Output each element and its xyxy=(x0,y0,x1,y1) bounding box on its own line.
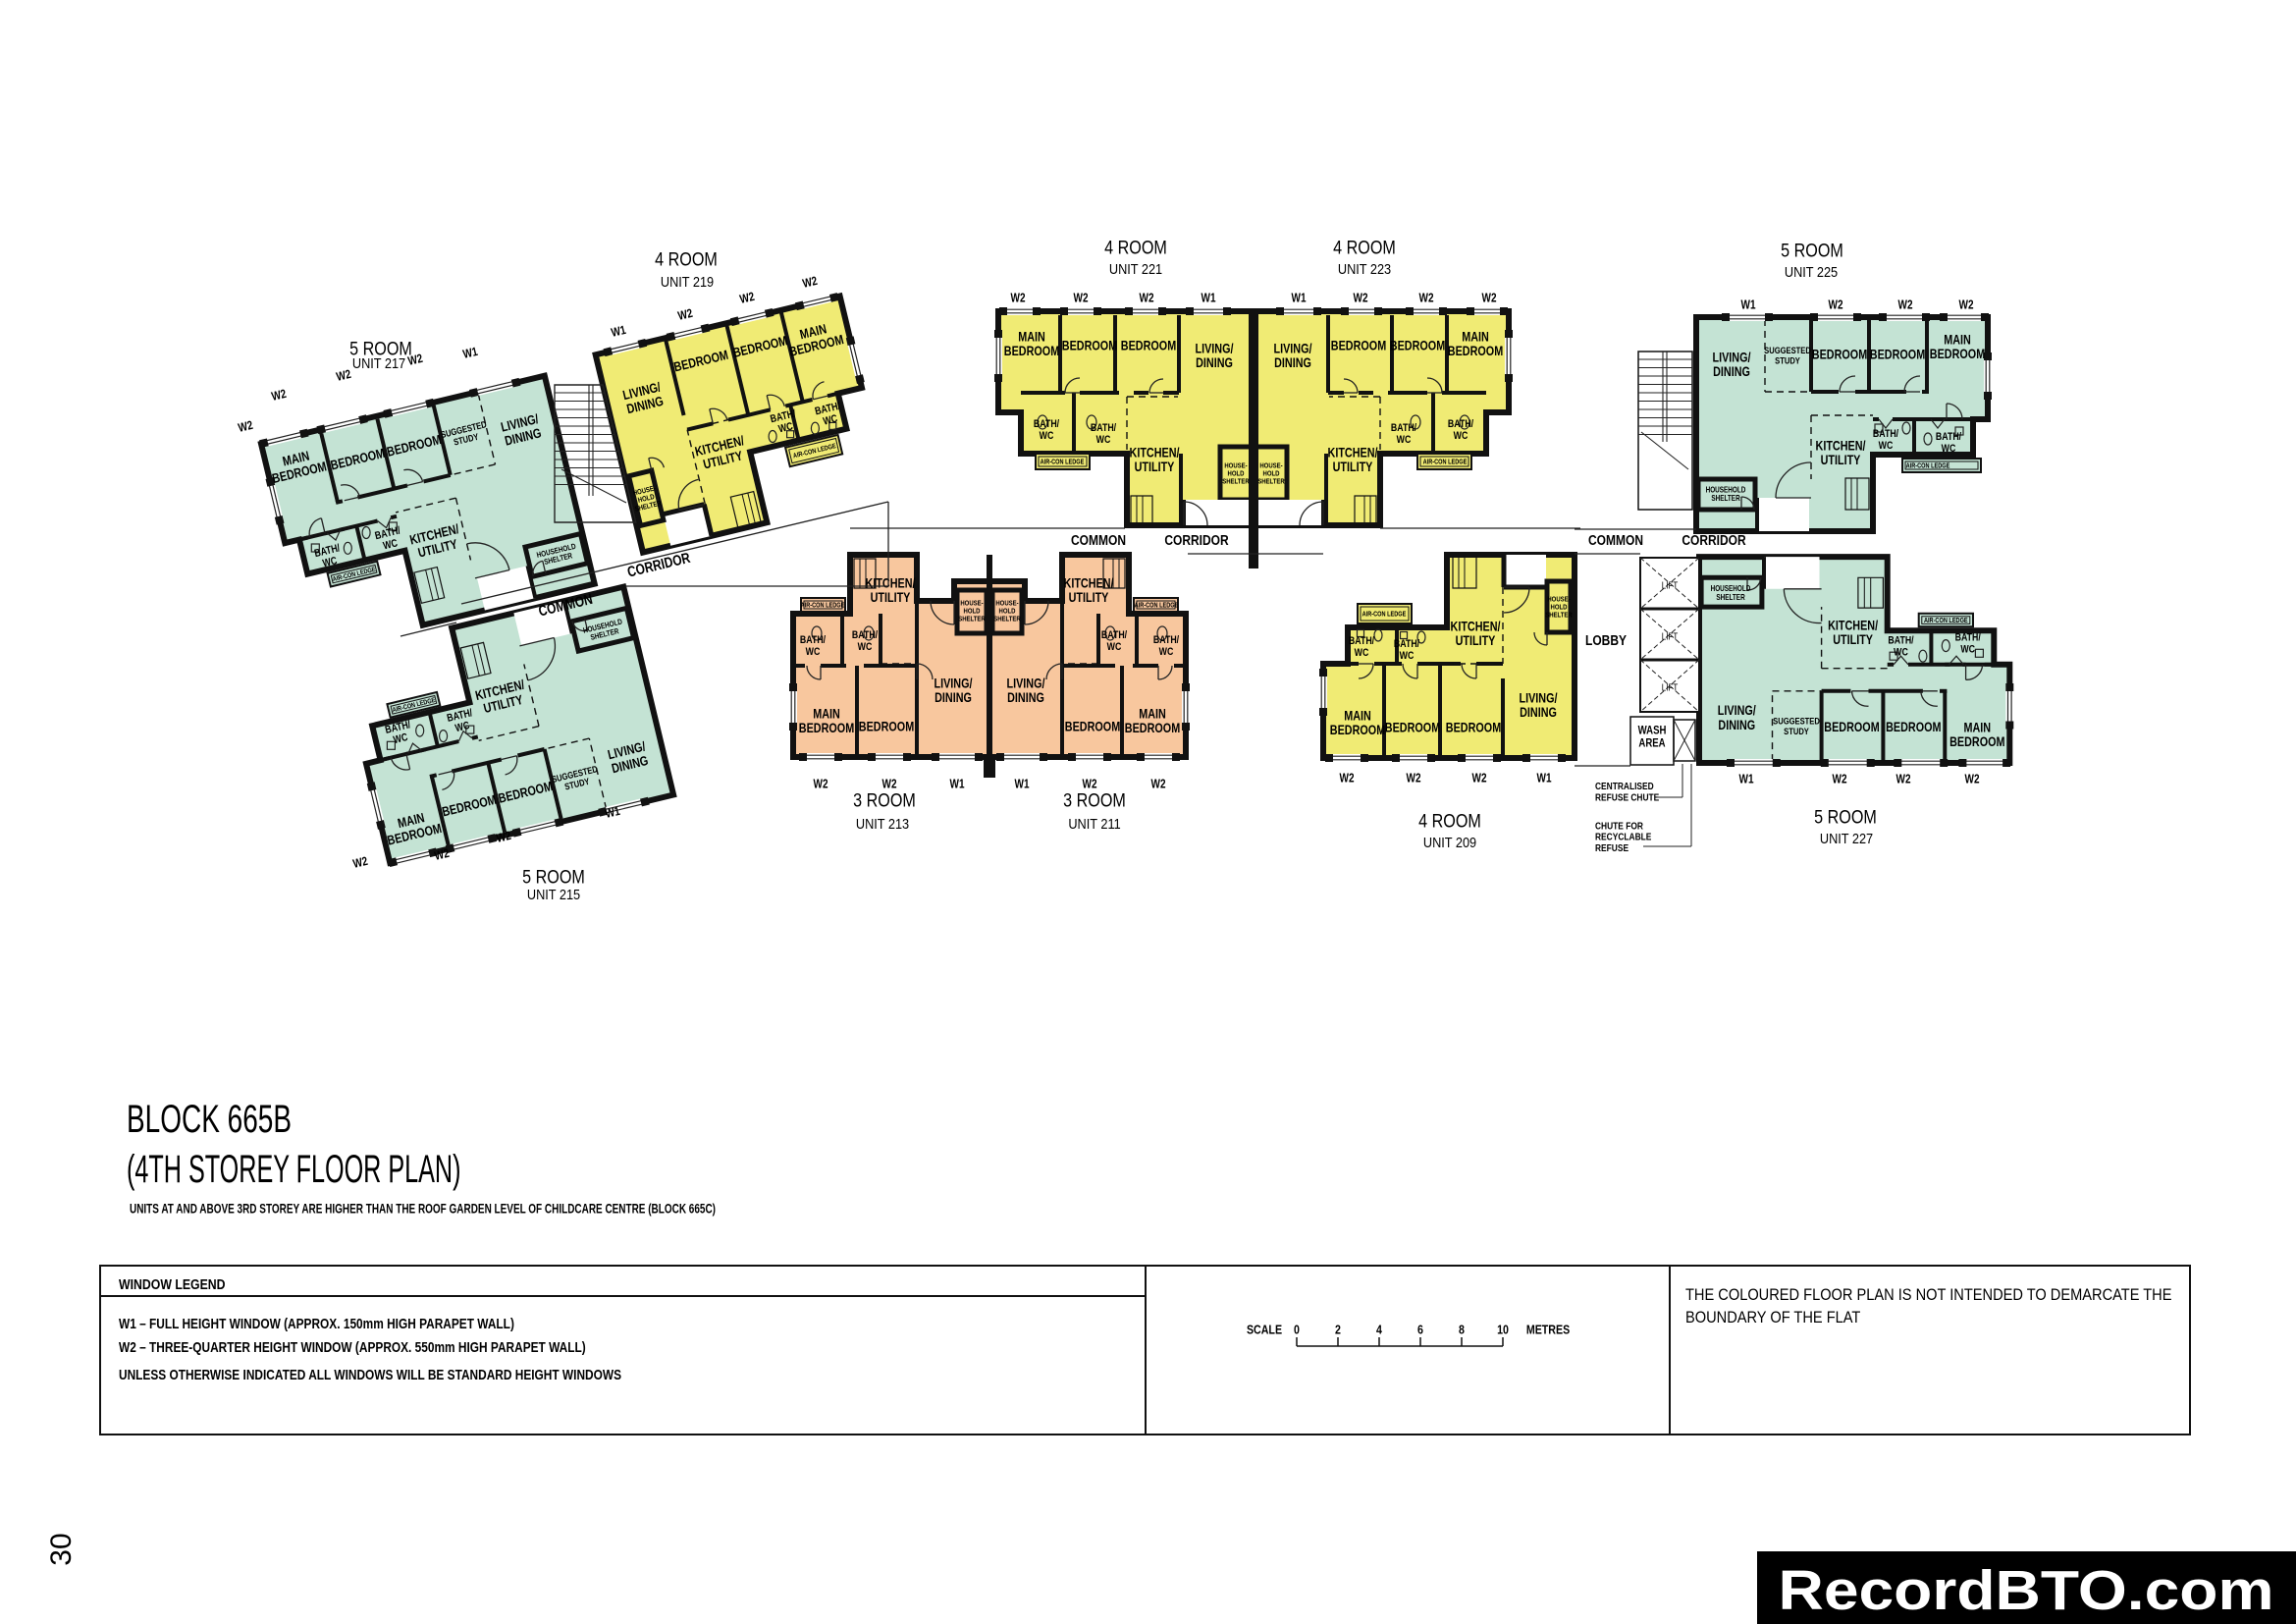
svg-text:4: 4 xyxy=(1376,1322,1382,1336)
svg-text:W2: W2 xyxy=(1965,773,1980,785)
svg-text:AIR-CON LEDGE: AIR-CON LEDGE xyxy=(1041,459,1085,466)
svg-text:LOBBY: LOBBY xyxy=(1585,632,1627,649)
svg-text:UNIT 211: UNIT 211 xyxy=(1068,815,1121,832)
svg-text:W1: W1 xyxy=(1201,292,1216,304)
svg-text:3 ROOM: 3 ROOM xyxy=(1063,789,1126,811)
svg-text:4 ROOM: 4 ROOM xyxy=(1104,237,1167,258)
svg-text:CORRIDOR: CORRIDOR xyxy=(1682,532,1745,549)
svg-text:HOUSEHOLDSHELTER: HOUSEHOLDSHELTER xyxy=(1711,583,1751,602)
svg-text:5 ROOM: 5 ROOM xyxy=(1781,240,1843,261)
svg-text:30: 30 xyxy=(45,1533,78,1565)
svg-text:AIR-CON LEDGE: AIR-CON LEDGE xyxy=(1906,462,1950,470)
svg-text:UNIT 209: UNIT 209 xyxy=(1423,834,1477,850)
svg-text:W1: W1 xyxy=(1739,773,1754,785)
svg-text:W1: W1 xyxy=(950,778,965,790)
svg-text:W2: W2 xyxy=(1833,773,1847,785)
svg-text:W2: W2 xyxy=(1419,292,1434,304)
svg-text:LIVING/DINING: LIVING/DINING xyxy=(1718,703,1757,732)
svg-text:8: 8 xyxy=(1459,1322,1465,1336)
svg-text:W2: W2 xyxy=(1011,292,1026,304)
svg-text:UNIT 227: UNIT 227 xyxy=(1820,830,1874,846)
svg-text:UNLESS OTHERWISE INDICATED ALL: UNLESS OTHERWISE INDICATED ALL WINDOWS W… xyxy=(119,1367,621,1382)
svg-text:LIVING/DINING: LIVING/DINING xyxy=(1274,341,1313,370)
svg-text:(4TH STOREY FLOOR PLAN): (4TH STOREY FLOOR PLAN) xyxy=(127,1148,461,1191)
svg-text:LIVING/DINING: LIVING/DINING xyxy=(1520,690,1559,720)
svg-text:W2: W2 xyxy=(814,778,828,790)
svg-text:W2: W2 xyxy=(1896,773,1911,785)
svg-text:UNIT 215: UNIT 215 xyxy=(527,886,581,902)
svg-text:W2: W2 xyxy=(1340,772,1355,785)
svg-text:AIR-CON LEDGE: AIR-CON LEDGE xyxy=(1924,617,1968,624)
svg-text:CORRIDOR: CORRIDOR xyxy=(1164,532,1228,549)
svg-text:W1: W1 xyxy=(1292,292,1307,304)
svg-text:BEDROOM: BEDROOM xyxy=(1812,348,1867,362)
svg-text:10: 10 xyxy=(1497,1322,1509,1336)
svg-text:KITCHEN/UTILITY: KITCHEN/UTILITY xyxy=(866,575,917,605)
svg-text:2: 2 xyxy=(1335,1322,1341,1336)
svg-text:BEDROOM: BEDROOM xyxy=(1446,721,1501,735)
svg-text:KITCHEN/UTILITY: KITCHEN/UTILITY xyxy=(1828,618,1879,647)
svg-text:LIVING/DINING: LIVING/DINING xyxy=(934,676,974,705)
svg-text:KITCHEN/UTILITY: KITCHEN/UTILITY xyxy=(1451,619,1502,648)
svg-text:AIR-CON LEDGE: AIR-CON LEDGE xyxy=(1362,611,1407,619)
svg-text:COMMON: COMMON xyxy=(1588,532,1643,549)
svg-text:W2 – THREE-QUARTER HEIGHT WI: W2 – THREE-QUARTER HEIGHT WINDOW (APPROX… xyxy=(119,1339,586,1355)
svg-text:UNIT 219: UNIT 219 xyxy=(661,273,715,290)
svg-text:UNITS AT AND ABOVE 3RD STOREY: UNITS AT AND ABOVE 3RD STOREY ARE HIGHER… xyxy=(130,1201,716,1217)
svg-text:KITCHEN/UTILITY: KITCHEN/UTILITY xyxy=(1816,438,1867,467)
svg-text:4 ROOM: 4 ROOM xyxy=(1333,237,1396,258)
svg-text:AIR-CON LEDGE: AIR-CON LEDGE xyxy=(801,602,845,610)
svg-text:W2: W2 xyxy=(1151,778,1166,790)
svg-text:COMMON: COMMON xyxy=(1071,532,1126,549)
svg-text:BEDROOM: BEDROOM xyxy=(859,720,914,734)
svg-text:UNIT 223: UNIT 223 xyxy=(1338,260,1392,277)
svg-text:LIVING/DINING: LIVING/DINING xyxy=(1713,350,1752,379)
svg-text:LIFT: LIFT xyxy=(1662,682,1679,693)
svg-text:UNIT 213: UNIT 213 xyxy=(856,815,910,832)
svg-text:W2: W2 xyxy=(1354,292,1368,304)
svg-text:4 ROOM: 4 ROOM xyxy=(1418,810,1481,832)
svg-text:UNIT 225: UNIT 225 xyxy=(1785,263,1839,280)
svg-text:W2: W2 xyxy=(1140,292,1154,304)
svg-text:BEDROOM: BEDROOM xyxy=(1390,339,1445,353)
svg-text:W2: W2 xyxy=(1407,772,1421,785)
svg-text:UNIT 221: UNIT 221 xyxy=(1109,260,1163,277)
svg-text:WASHAREA: WASHAREA xyxy=(1638,725,1667,750)
svg-text:WINDOW LEGEND: WINDOW LEGEND xyxy=(119,1276,226,1292)
svg-text:6: 6 xyxy=(1417,1322,1423,1336)
svg-text:W2: W2 xyxy=(1959,298,1974,311)
svg-text:BEDROOM: BEDROOM xyxy=(1065,720,1120,734)
svg-text:HOUSEHOLDSHELTER: HOUSEHOLDSHELTER xyxy=(1706,485,1746,504)
svg-text:KITCHEN/UTILITY: KITCHEN/UTILITY xyxy=(1130,445,1181,474)
svg-text:3 ROOM: 3 ROOM xyxy=(853,789,916,811)
svg-text:W2: W2 xyxy=(1482,292,1497,304)
svg-text:W2: W2 xyxy=(1472,772,1487,785)
svg-text:W2: W2 xyxy=(1074,292,1089,304)
svg-text:METRES: METRES xyxy=(1526,1322,1570,1336)
svg-text:W2: W2 xyxy=(1829,298,1843,311)
svg-text:CENTRALISEDREFUSE CHUTE: CENTRALISEDREFUSE CHUTE xyxy=(1595,781,1659,803)
svg-text:BOUNDARY OF THE FLAT: BOUNDARY OF THE FLAT xyxy=(1685,1309,1861,1326)
svg-text:BEDROOM: BEDROOM xyxy=(1824,720,1879,734)
svg-text:LIVING/DINING: LIVING/DINING xyxy=(1196,341,1235,370)
svg-text:THE COLOURED FLOOR PLAN IS NOT: THE COLOURED FLOOR PLAN IS NOT INTENDED … xyxy=(1685,1286,2171,1304)
svg-text:W1 – FULL HEIGHT WINDOW (APP: W1 – FULL HEIGHT WINDOW (APPROX. 150mm H… xyxy=(119,1316,514,1331)
svg-text:BEDROOM: BEDROOM xyxy=(1870,348,1925,362)
svg-text:W2: W2 xyxy=(1898,298,1913,311)
svg-text:KITCHEN/UTILITY: KITCHEN/UTILITY xyxy=(1064,575,1115,605)
svg-text:BEDROOM: BEDROOM xyxy=(1331,339,1386,353)
svg-text:LIVING/DINING: LIVING/DINING xyxy=(1007,676,1046,705)
svg-text:5 ROOM: 5 ROOM xyxy=(1814,806,1877,828)
svg-text:RecordBTO.com: RecordBTO.com xyxy=(1779,1559,2274,1622)
svg-text:LIFT: LIFT xyxy=(1662,631,1679,642)
svg-text:KITCHEN/UTILITY: KITCHEN/UTILITY xyxy=(1328,445,1379,474)
svg-text:W1: W1 xyxy=(1015,778,1030,790)
svg-text:UNIT 217: UNIT 217 xyxy=(352,354,406,371)
svg-text:BEDROOM: BEDROOM xyxy=(1062,339,1117,353)
svg-text:W1: W1 xyxy=(1537,772,1552,785)
svg-text:SCALE: SCALE xyxy=(1247,1322,1282,1336)
svg-text:0: 0 xyxy=(1294,1322,1300,1336)
svg-text:LIFT: LIFT xyxy=(1662,580,1679,591)
svg-text:BLOCK 665B: BLOCK 665B xyxy=(127,1098,292,1141)
svg-text:4 ROOM: 4 ROOM xyxy=(655,248,718,270)
svg-text:W1: W1 xyxy=(1741,298,1756,311)
svg-text:AIR-CON LEDGE: AIR-CON LEDGE xyxy=(1423,459,1468,466)
svg-text:BEDROOM: BEDROOM xyxy=(1886,720,1941,734)
svg-text:BEDROOM: BEDROOM xyxy=(1121,339,1176,353)
svg-text:BEDROOM: BEDROOM xyxy=(1385,721,1440,735)
svg-text:AIR-CON LEDGE: AIR-CON LEDGE xyxy=(1135,602,1179,610)
svg-text:5 ROOM: 5 ROOM xyxy=(522,866,585,888)
